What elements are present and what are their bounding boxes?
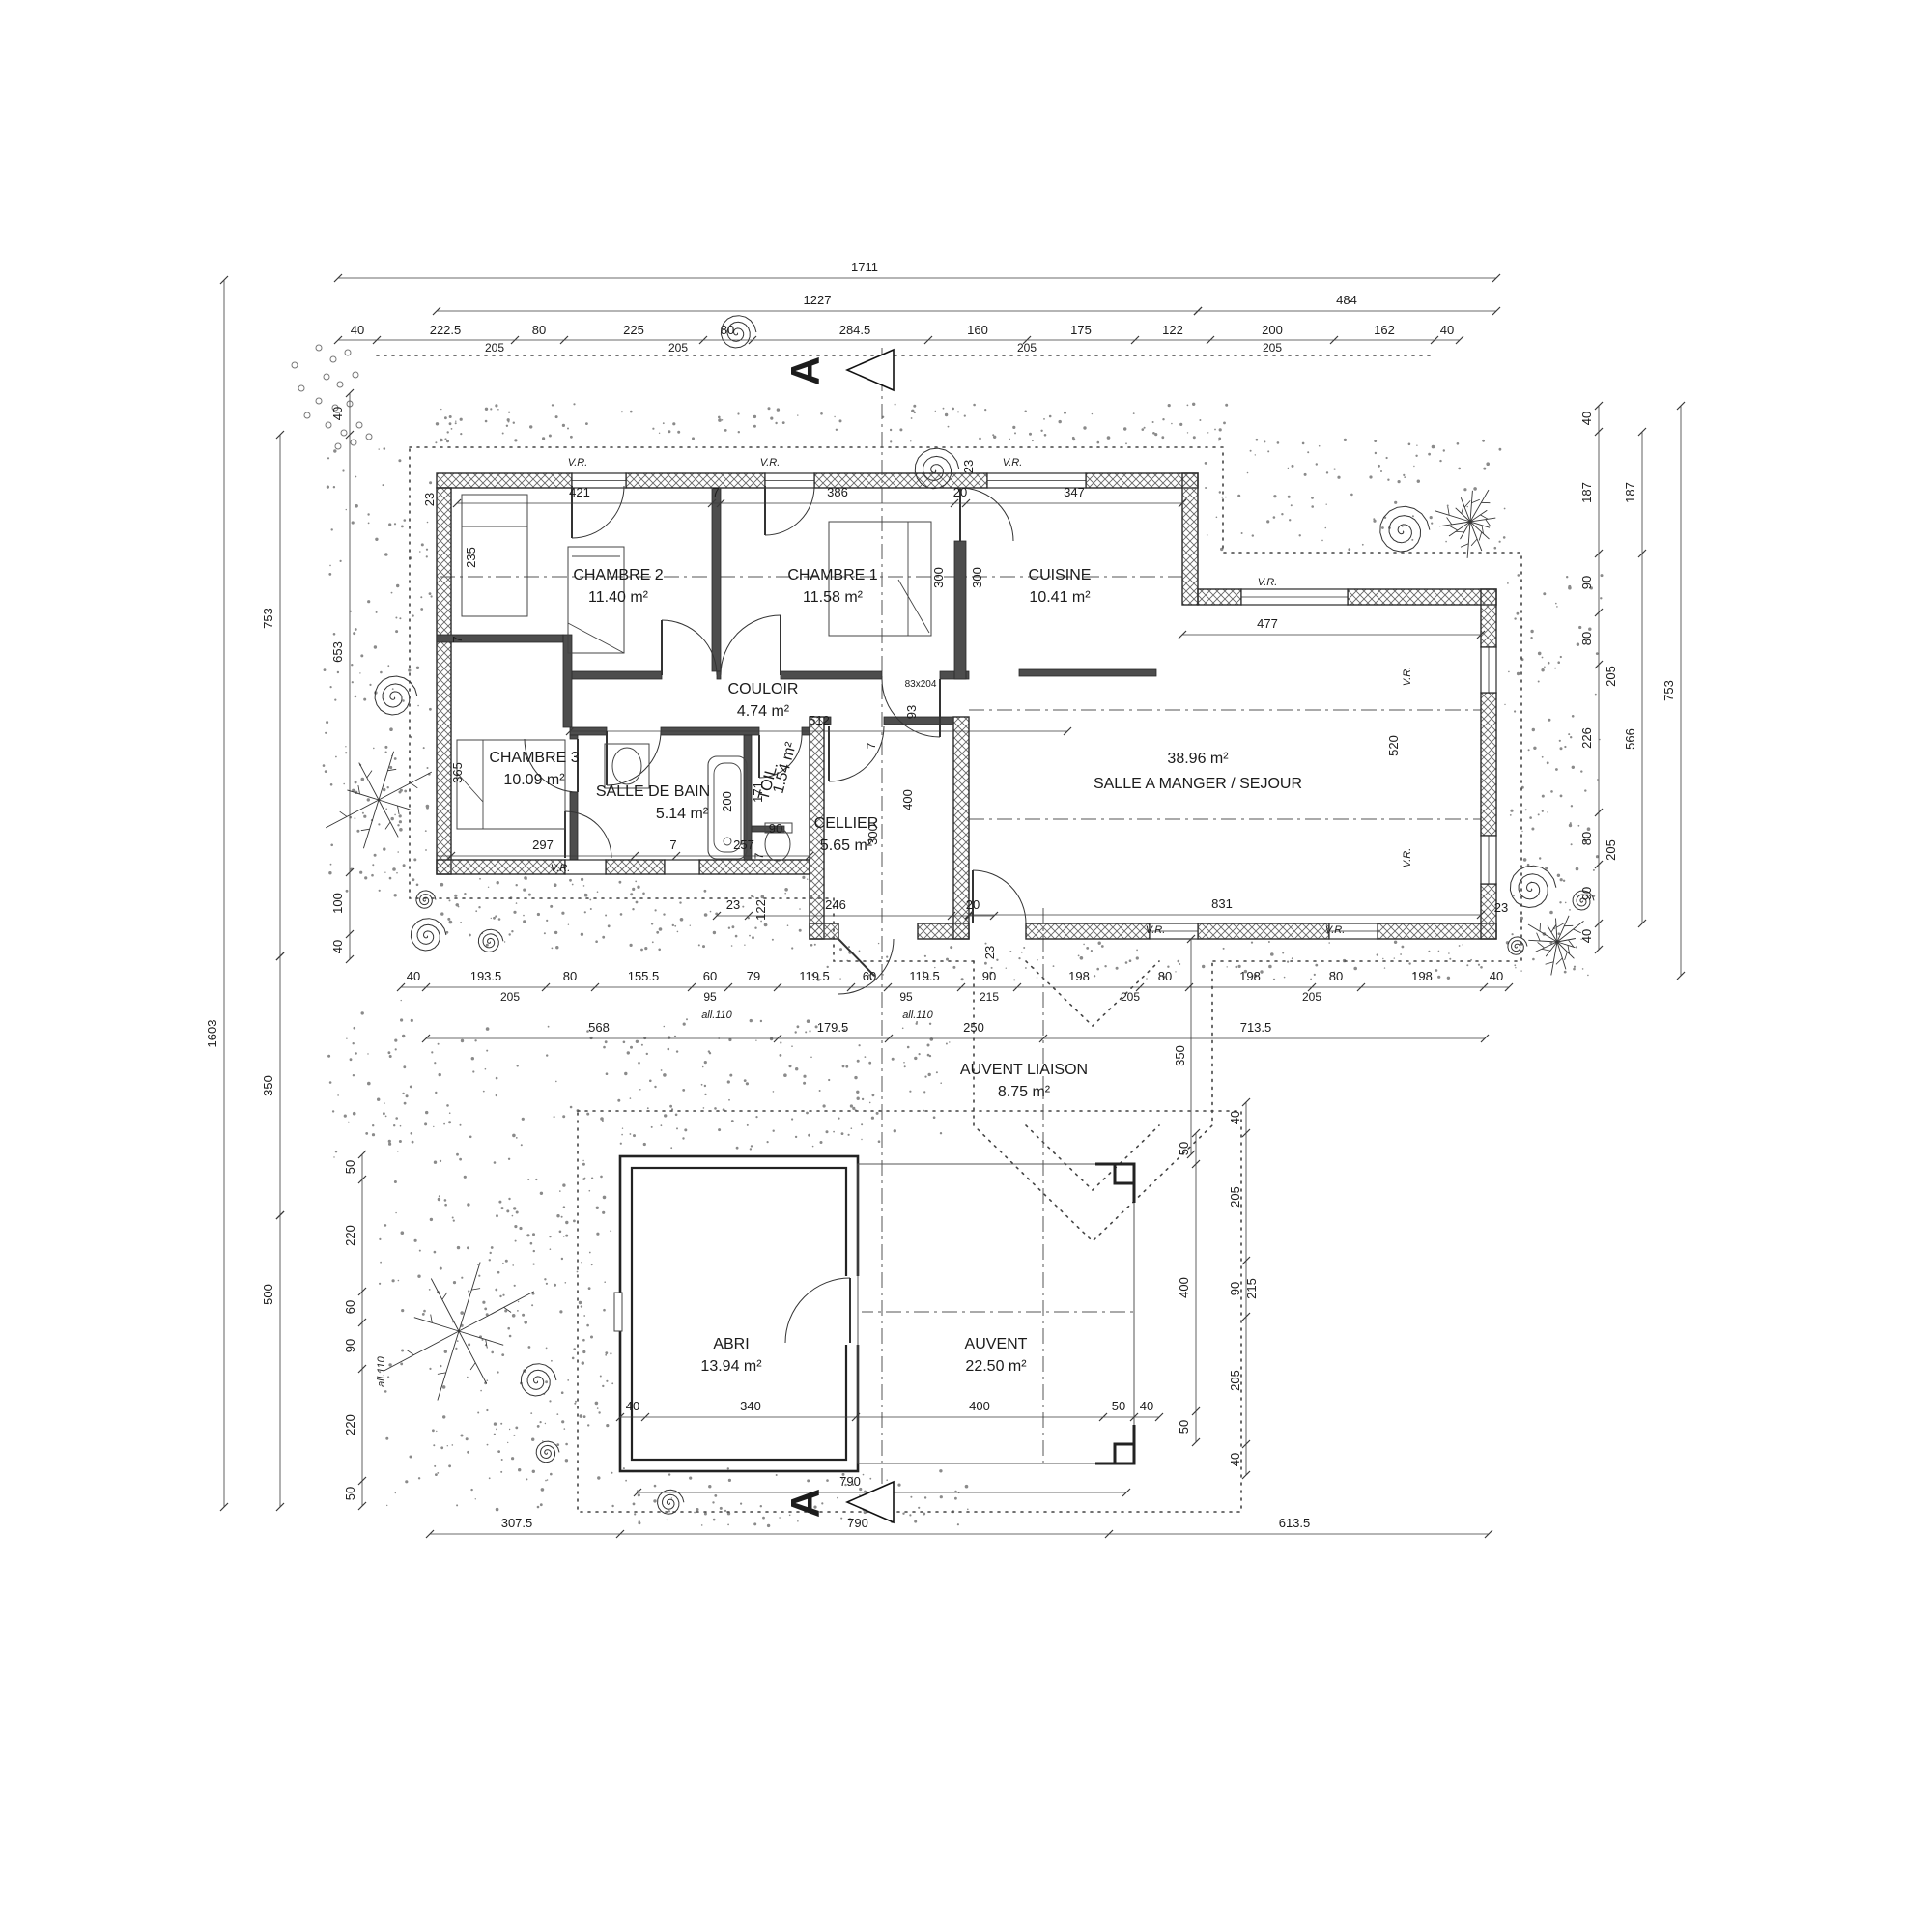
- stipple-dot: [565, 1282, 567, 1284]
- stipple-dot: [1571, 805, 1573, 807]
- stipple-dot: [568, 924, 569, 925]
- stipple-dot: [444, 1199, 447, 1202]
- stipple-dot: [1548, 662, 1550, 665]
- stipple-dot: [1083, 426, 1086, 429]
- stipple-dot: [540, 1192, 543, 1195]
- stipple-dot: [395, 1048, 397, 1050]
- stipple-dot: [427, 767, 429, 769]
- stipple-dot: [582, 1361, 584, 1364]
- stipple-dot: [453, 1220, 455, 1222]
- stipple-dot: [663, 913, 665, 915]
- dim-label: 300: [931, 567, 946, 588]
- stipple-dot: [919, 1053, 921, 1055]
- dotted-outline: [1026, 1125, 1159, 1190]
- stipple-dot: [1435, 969, 1438, 972]
- stipple-dot: [857, 1060, 860, 1063]
- stipple-dot: [772, 939, 774, 941]
- stipple-dot: [542, 1440, 543, 1441]
- stipple-dot: [399, 1140, 402, 1143]
- stipple-dot: [337, 671, 339, 673]
- stipple-dot: [663, 1073, 667, 1077]
- stipple-dot: [1386, 457, 1388, 459]
- stipple-dot: [440, 1446, 443, 1449]
- stipple-dot: [491, 918, 492, 919]
- stipple-dot: [1273, 979, 1275, 980]
- stipple-dot: [810, 1057, 812, 1059]
- stipple-dot: [1289, 519, 1291, 521]
- dim-label: 162: [1374, 323, 1395, 337]
- stipple-dot: [696, 1508, 698, 1511]
- burst-branch: [398, 806, 400, 814]
- stipple-dot: [561, 1216, 563, 1218]
- stipple-dot: [667, 1520, 668, 1520]
- stipple-dot: [753, 415, 756, 418]
- stipple-dot: [979, 438, 981, 440]
- stipple-dot: [664, 1114, 667, 1117]
- stipple-dot: [738, 431, 740, 433]
- stipple-dot: [807, 1479, 810, 1482]
- dim-label: 40: [1579, 929, 1594, 943]
- stipple-dot: [807, 1019, 810, 1023]
- stipple-dot: [1560, 656, 1562, 658]
- dimension-v: [1187, 935, 1195, 1158]
- pebble-dot: [366, 434, 372, 440]
- stipple-dot: [737, 412, 739, 414]
- stipple-dot: [495, 915, 497, 917]
- stipple-dot: [1227, 966, 1228, 967]
- room-area: 11.58 m²: [803, 589, 864, 606]
- stipple-dot: [562, 424, 565, 427]
- stipple-dot: [863, 1474, 865, 1476]
- stipple-dot: [457, 1246, 460, 1249]
- dim-label: 50: [1177, 1142, 1191, 1155]
- stipple-dot: [419, 1250, 421, 1252]
- stipple-dot: [425, 830, 427, 832]
- dim-label: V.R.: [1003, 457, 1023, 469]
- burst-ray: [379, 752, 394, 800]
- stipple-dot: [416, 884, 419, 887]
- dim-label: 198: [1239, 969, 1261, 983]
- stipple-dot: [1499, 541, 1501, 543]
- stipple-dot: [443, 1123, 445, 1125]
- stipple-dot: [1486, 462, 1490, 466]
- stipple-dot: [1480, 966, 1483, 969]
- stipple-dot: [505, 1260, 508, 1263]
- stipple-dot: [1560, 878, 1563, 881]
- stipple-dot: [475, 1498, 476, 1499]
- stipple-dot: [1270, 952, 1274, 956]
- stipple-dot: [345, 752, 347, 753]
- stipple-dot: [1542, 657, 1544, 659]
- stipple-dot: [783, 1073, 787, 1077]
- room-label-couloir: COULOIR4.74 m²: [728, 681, 799, 720]
- dim-label: 95: [703, 990, 717, 1004]
- burst-branch: [1461, 544, 1468, 548]
- stipple-dot: [454, 895, 457, 897]
- stipple-dot: [591, 1264, 593, 1265]
- stipple-dot: [742, 906, 744, 908]
- stipple-dot: [1316, 463, 1318, 465]
- burst-ray: [1470, 518, 1495, 522]
- stipple-dot: [787, 924, 789, 926]
- burst-branch: [387, 769, 396, 771]
- stipple-dot: [1187, 405, 1189, 407]
- stipple-dot: [1162, 418, 1164, 420]
- dim-label: 80: [532, 323, 546, 337]
- stipple-dot: [446, 440, 449, 442]
- stipple-dot: [590, 1037, 593, 1039]
- stipple-dot: [916, 1021, 918, 1023]
- stipple-dot: [643, 1143, 646, 1146]
- stipple-dot: [328, 573, 331, 576]
- stipple-dot: [1167, 966, 1169, 968]
- stipple-dot: [841, 1132, 844, 1135]
- pebble-dot: [326, 422, 331, 428]
- stipple-dot: [718, 416, 721, 419]
- stipple-dot: [1040, 430, 1042, 432]
- stipple-dot: [515, 1240, 517, 1242]
- stipple-dot: [513, 1435, 515, 1436]
- stipple-dot: [523, 920, 526, 923]
- dim-label: 155.5: [628, 969, 660, 983]
- stipple-dot: [923, 1513, 925, 1516]
- stipple-dot: [663, 422, 665, 424]
- stipple-dot: [447, 918, 450, 921]
- stipple-dot: [1179, 423, 1182, 426]
- stipple-dot: [379, 1283, 381, 1285]
- stipple-dot: [1550, 790, 1553, 793]
- burst-branch: [367, 771, 372, 778]
- stipple-dot: [458, 906, 460, 908]
- auvent-outline: [858, 1164, 1134, 1463]
- stipple-dot: [1538, 652, 1542, 656]
- stipple-dot: [839, 948, 842, 951]
- stipple-dot: [903, 1062, 905, 1064]
- stipple-dot: [630, 1133, 632, 1135]
- stipple-dot: [674, 925, 676, 927]
- stipple-dot: [1573, 968, 1576, 971]
- stipple-dot: [779, 1517, 781, 1519]
- stipple-dot: [647, 1107, 649, 1109]
- burst-ray: [1556, 919, 1558, 943]
- stipple-dot: [584, 911, 586, 913]
- dim-label: 222.5: [430, 323, 462, 337]
- stipple-dot: [526, 1478, 527, 1480]
- stipple-dot: [562, 1115, 565, 1118]
- stipple-dot: [533, 1250, 535, 1252]
- exterior-wall: [437, 488, 451, 874]
- stipple-dot: [635, 881, 637, 883]
- stipple-dot: [401, 1000, 402, 1001]
- stipple-dot: [636, 1040, 639, 1043]
- stipple-dot: [1593, 869, 1595, 871]
- stipple-dot: [433, 1444, 435, 1446]
- stipple-dot: [467, 1451, 469, 1454]
- stipple-dot: [514, 439, 517, 441]
- fixture-ellipse: [612, 748, 641, 784]
- stipple-dot: [582, 1339, 585, 1342]
- stipple-dot: [753, 1522, 756, 1525]
- stipple-dot: [837, 1497, 838, 1499]
- dim-label: V.R.: [760, 457, 781, 469]
- stipple-dot: [897, 1484, 900, 1487]
- section-letter-top: A: [782, 356, 828, 385]
- stipple-dot: [511, 930, 513, 932]
- stipple-dot: [1125, 442, 1127, 444]
- furniture-layer: [457, 495, 931, 1331]
- stipple-dot: [394, 523, 396, 525]
- dimension-v: [346, 389, 354, 963]
- stipple-dot: [708, 1050, 710, 1052]
- stipple-dot: [1448, 952, 1450, 954]
- stipple-dot: [630, 1097, 632, 1099]
- dimension-v: [358, 1151, 366, 1510]
- stipple-dot: [359, 871, 362, 874]
- stipple-dot: [487, 1444, 489, 1446]
- stipple-dot: [1572, 766, 1575, 769]
- stipple-dot: [430, 1218, 433, 1221]
- stipple-dot: [848, 946, 850, 948]
- stipple-dot: [440, 1365, 441, 1367]
- stipple-dot: [1080, 956, 1084, 960]
- stipple-dot: [529, 425, 532, 428]
- stipple-dot: [501, 1459, 503, 1461]
- stipple-dot: [1576, 946, 1577, 948]
- stipple-dot: [683, 1023, 686, 1026]
- stipple-dot: [1218, 438, 1221, 440]
- stipple-dot: [1413, 466, 1414, 467]
- stipple-dot: [552, 948, 554, 950]
- stipple-dot: [1478, 964, 1480, 966]
- stipple-dot: [330, 864, 332, 866]
- burst-ray: [431, 1279, 459, 1332]
- stipple-dot: [1473, 487, 1477, 491]
- stipple-dot: [467, 1377, 469, 1378]
- stipple-dot: [496, 1429, 497, 1431]
- stipple-dot: [820, 412, 823, 415]
- stipple-dot: [684, 1128, 687, 1131]
- dim-label: 23: [982, 946, 997, 959]
- stipple-dot: [682, 1137, 684, 1139]
- stipple-dot: [1049, 415, 1052, 418]
- stipple-dot: [940, 1082, 942, 1084]
- stipple-dot: [1538, 813, 1540, 815]
- stipple-dot: [1521, 831, 1522, 832]
- stipple-dot: [333, 449, 336, 452]
- burst-ray: [414, 1318, 459, 1331]
- exterior-wall: [699, 860, 810, 874]
- dim-label: 90: [769, 821, 782, 836]
- room-area: 10.09 m²: [503, 772, 565, 788]
- stipple-dot: [1223, 422, 1226, 425]
- stipple-dot: [861, 1139, 862, 1140]
- stipple-dot: [440, 912, 443, 915]
- stipple-dot: [440, 1267, 442, 1270]
- stipple-dot: [440, 883, 444, 887]
- stipple-dot: [596, 1233, 599, 1236]
- stipple-dot: [404, 790, 407, 793]
- bush-spiral: [411, 919, 446, 951]
- stipple-dot: [606, 1380, 608, 1382]
- stipple-dot: [420, 608, 423, 611]
- dim-label: V.R.: [1402, 667, 1413, 687]
- stipple-dot: [902, 1028, 904, 1030]
- doors-layer: [525, 486, 1026, 1343]
- stipple-dot: [1299, 534, 1301, 536]
- stipple-dot: [1443, 449, 1445, 451]
- stipple-dot: [1527, 864, 1530, 867]
- stipple-dot: [654, 1086, 656, 1088]
- stipple-dot: [506, 1209, 509, 1212]
- stipple-dot: [1207, 432, 1208, 433]
- dimension-v: [276, 952, 284, 1219]
- stipple-dot: [670, 1147, 672, 1149]
- stipple-dot: [642, 893, 645, 895]
- stipple-dot: [468, 1290, 469, 1292]
- dim-label: 80: [1579, 832, 1594, 845]
- stipple-dot: [554, 931, 557, 934]
- stipple-dot: [501, 1353, 504, 1356]
- stipple-dot: [429, 1289, 431, 1291]
- stipple-dot: [1337, 476, 1340, 479]
- interior-wall: [1019, 669, 1156, 676]
- stipple-dot: [834, 416, 835, 417]
- stipple-dot: [460, 418, 463, 421]
- stipple-dot: [402, 1093, 404, 1094]
- stipple-dot: [448, 1121, 451, 1123]
- stipple-dot: [776, 1474, 778, 1476]
- stipple-dot: [418, 1477, 420, 1479]
- stipple-dot: [805, 1031, 807, 1033]
- stipple-dot: [1428, 453, 1431, 456]
- dim-label: 400: [1177, 1277, 1191, 1298]
- stipple-dot: [603, 1046, 606, 1049]
- stipple-dot: [948, 426, 950, 428]
- dim-label: 122: [753, 899, 768, 921]
- burst-ray: [326, 800, 379, 828]
- stipple-dot: [582, 1163, 585, 1166]
- stipple-dot: [1430, 516, 1433, 519]
- stipple-dot: [577, 1271, 579, 1273]
- stipple-dot: [608, 924, 611, 927]
- stipple-dot: [727, 1524, 729, 1526]
- stipple-dot: [497, 1450, 500, 1453]
- stipple-dot: [1587, 827, 1591, 831]
- burst-branch: [1471, 539, 1477, 546]
- stipple-dot: [606, 1072, 609, 1075]
- room-name: CHAMBRE 2: [573, 567, 663, 583]
- floor-plan-page: { "drawing": { "type": "architectural-fl…: [0, 0, 1932, 1932]
- stipple-dot: [485, 420, 488, 423]
- stipple-dot: [412, 614, 413, 616]
- dim-label: 80: [721, 323, 734, 337]
- stipple-dot: [1328, 942, 1330, 944]
- stipple-dot: [374, 645, 377, 648]
- stipple-dot: [549, 1400, 551, 1402]
- stipple-dot: [562, 1183, 565, 1186]
- pebble-dot: [324, 374, 329, 380]
- stipple-dot: [1214, 429, 1216, 431]
- stipple-dot: [515, 1427, 518, 1430]
- stipple-dot: [859, 1044, 861, 1046]
- dim-label: 421: [569, 485, 590, 499]
- stipple-dot: [1507, 582, 1509, 584]
- stipple-dot: [461, 1039, 464, 1042]
- stipple-dot: [1578, 825, 1580, 827]
- stipple-dot: [658, 949, 661, 952]
- burst-branch: [471, 1289, 480, 1291]
- stipple-dot: [704, 1094, 706, 1095]
- stipple-dot: [659, 927, 663, 931]
- stipple-dot: [441, 440, 443, 441]
- dimension-h: [422, 1035, 1489, 1042]
- stipple-dot: [590, 908, 592, 910]
- stipple-dot: [1556, 606, 1558, 608]
- dim-label: 512: [809, 713, 830, 727]
- dim-label: 198: [1411, 969, 1433, 983]
- stipple-dot: [924, 955, 926, 957]
- stipple-dot: [401, 1231, 405, 1235]
- stipple-dot: [582, 1178, 585, 1180]
- stipple-dot: [924, 1076, 926, 1078]
- burst-branch: [1546, 962, 1554, 965]
- stipple-dot: [1531, 828, 1534, 831]
- stipple-dot: [1091, 950, 1093, 952]
- bush-spiral: [1508, 937, 1527, 954]
- stipple-dot: [442, 1385, 446, 1389]
- stipple-dot: [329, 1081, 332, 1084]
- stipple-dot: [1013, 979, 1015, 980]
- stipple-dot: [359, 672, 360, 673]
- stipple-dot: [1247, 472, 1249, 474]
- stipple-dot: [1221, 497, 1223, 498]
- stipple-dot: [676, 1127, 678, 1129]
- burst-branch: [1540, 923, 1541, 931]
- stipple-dot: [1518, 574, 1520, 577]
- stipple-dot: [411, 736, 412, 738]
- pebble-dot: [345, 350, 351, 355]
- stipple-dot: [993, 436, 996, 439]
- stipple-dot: [325, 732, 327, 734]
- stipple-dot: [350, 1058, 353, 1061]
- room-area: 11.40 m²: [588, 589, 649, 606]
- burst-branch: [407, 1350, 413, 1354]
- stipple-dot: [353, 1042, 355, 1044]
- stipple-dot: [567, 428, 569, 430]
- stipple-dot: [569, 879, 572, 882]
- stipple-dot: [1555, 768, 1558, 771]
- stipple-dot: [727, 1467, 729, 1469]
- stipple-dot: [496, 1094, 497, 1096]
- stipple-dot: [809, 1030, 810, 1032]
- stipple-dot: [420, 596, 422, 598]
- stipple-dot: [1291, 504, 1293, 506]
- stipple-dot: [856, 1091, 859, 1094]
- room-area: 13.94 m²: [700, 1358, 762, 1375]
- stipple-dot: [372, 1133, 375, 1136]
- exterior-wall: [1026, 923, 1150, 939]
- dim-label: V.R.: [1146, 924, 1166, 936]
- stipple-dot: [1380, 470, 1382, 472]
- stipple-dot: [1362, 544, 1364, 546]
- stipple-dot: [497, 881, 499, 884]
- stipple-dot: [581, 1262, 582, 1264]
- dimension-v: [220, 276, 228, 1511]
- stipple-dot: [457, 1340, 459, 1342]
- burst-branch: [438, 1373, 446, 1375]
- dim-label: 193.5: [470, 969, 502, 983]
- dim-label: 307.5: [501, 1516, 533, 1530]
